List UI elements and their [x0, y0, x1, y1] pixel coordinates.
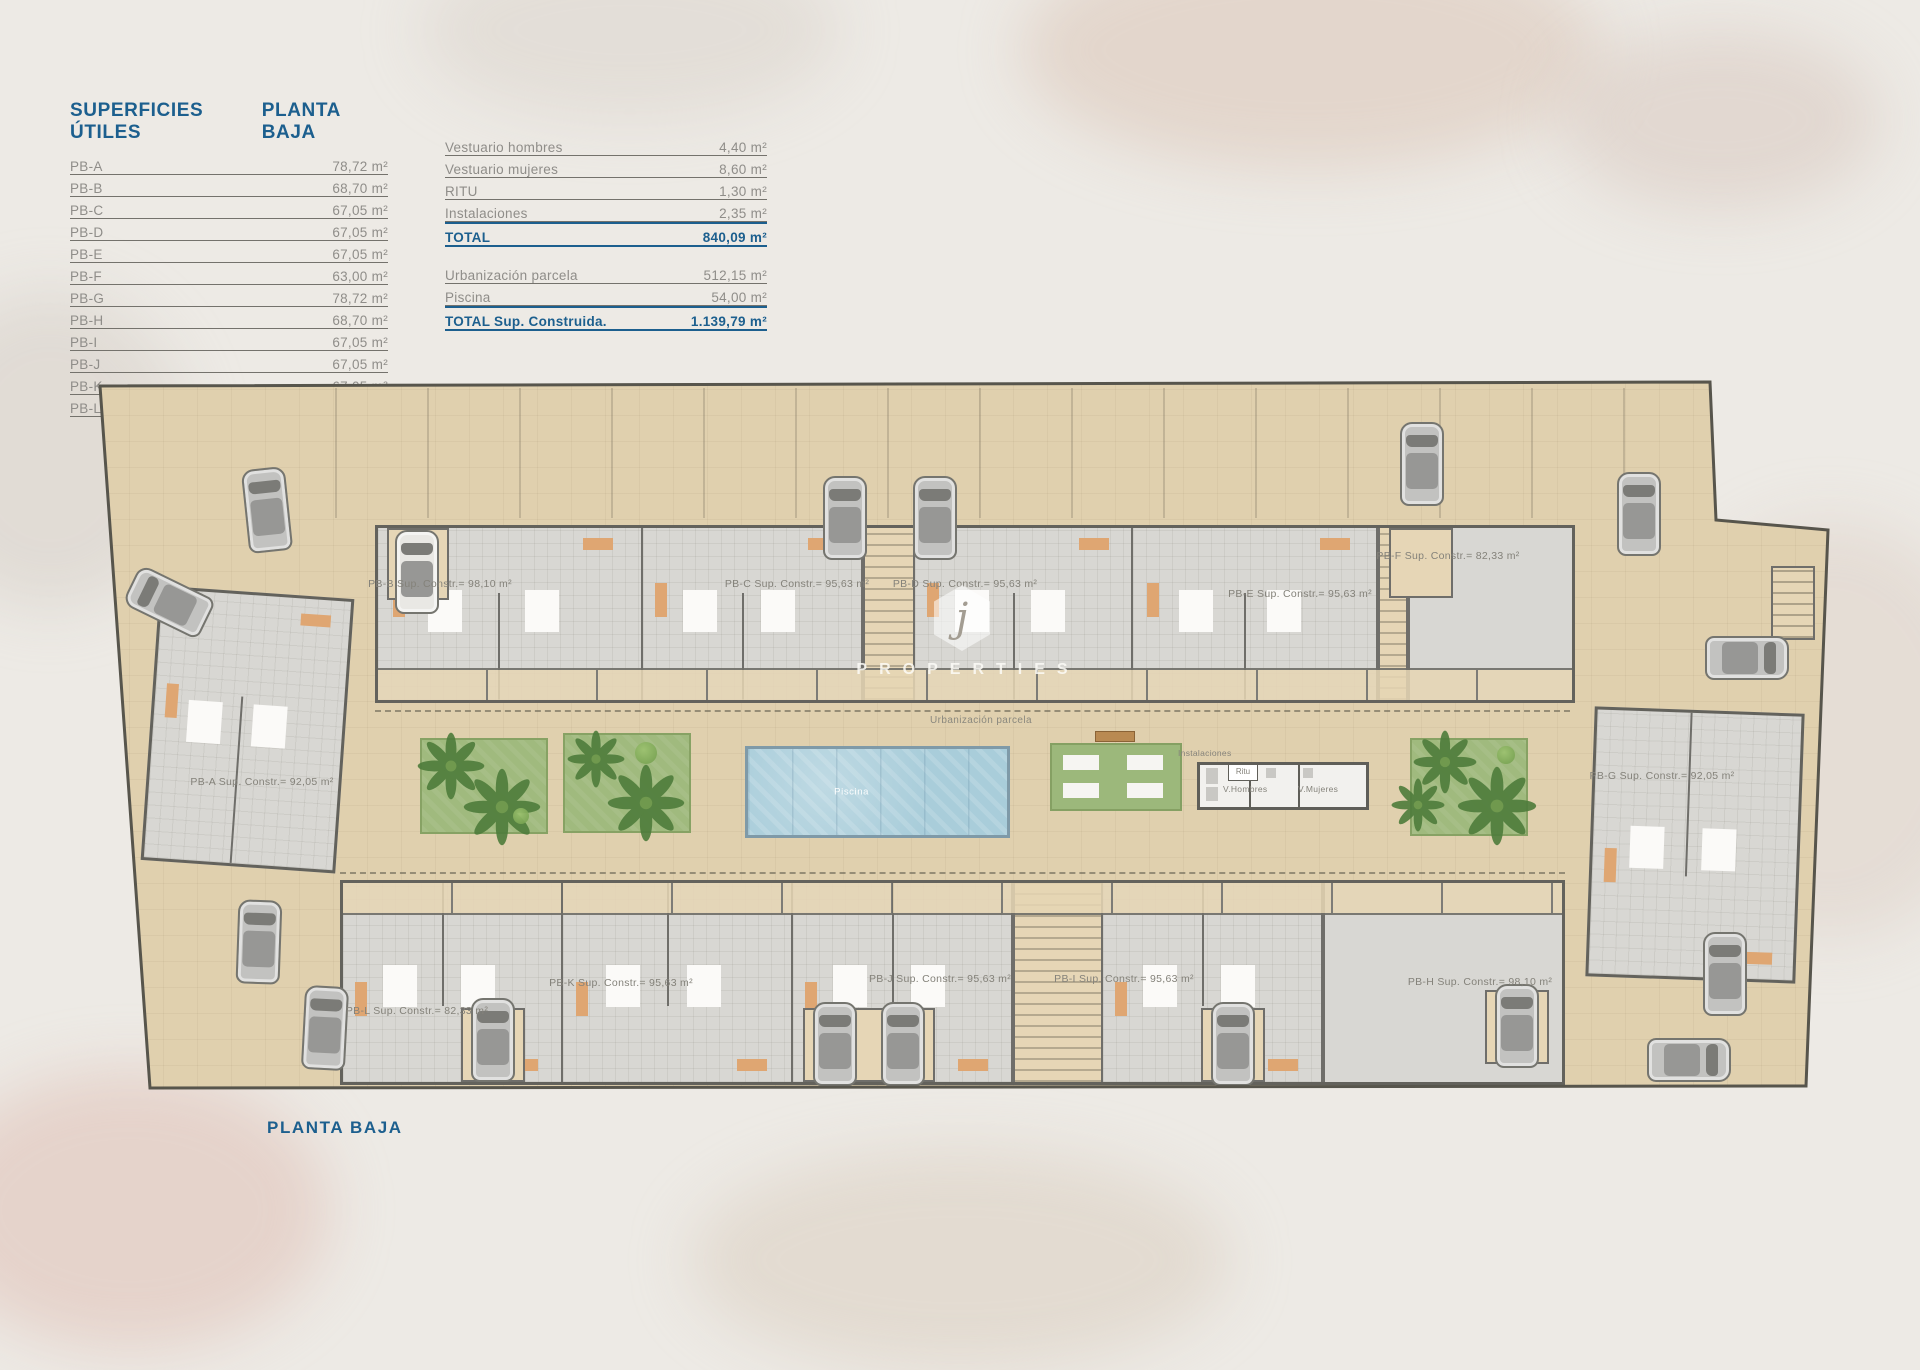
grand-total-row: TOTAL Sup. Construida.1.139,79 m² — [445, 306, 767, 331]
unit-label-pb-c: PB-C Sup. Constr.= 95,63 m² — [725, 578, 869, 590]
unit-id: PB-F — [70, 269, 102, 284]
unit-area: 63,00 m² — [332, 269, 388, 284]
item-area: 1,30 m² — [719, 184, 767, 199]
parked-car — [813, 1002, 857, 1086]
unit-area: 78,72 m² — [332, 291, 388, 306]
apartment-pb-g — [1585, 706, 1804, 983]
mens-changing-room-label: V.Hombres — [1223, 784, 1267, 794]
palm-tree-icon — [1391, 778, 1445, 832]
parking-bays — [245, 388, 1695, 518]
unit-label-pb-b: PB-B Sup. Constr.= 98,10 m² — [368, 578, 512, 590]
table-floor-title: PLANTA BAJA — [262, 100, 388, 144]
parked-car — [241, 466, 294, 554]
unit-label-pb-l: PB-L Sup. Constr.= 82,33 m² — [346, 1005, 488, 1017]
table-row: RITU1,30 m² — [445, 178, 767, 200]
table-header: SUPERFICIES ÚTILES PLANTA BAJA — [70, 100, 388, 144]
unit-label-pb-g: PB-G Sup. Constr.= 92,05 m² — [1590, 770, 1735, 782]
parked-car — [1211, 1002, 1255, 1086]
item-label: Piscina — [445, 290, 491, 305]
item-label: Vestuario hombres — [445, 140, 563, 155]
unit-id: PB-E — [70, 247, 103, 262]
background-wash — [0, 1070, 330, 1350]
unit-area: 67,05 m² — [332, 225, 388, 240]
parked-car — [1703, 932, 1747, 1016]
unit-label-pb-d: PB-D Sup. Constr.= 95,63 m² — [893, 578, 1037, 590]
boundary-dashed-line — [375, 710, 1570, 712]
unit-id: PB-I — [70, 335, 97, 350]
ritu-room: Ritu — [1228, 764, 1258, 781]
total-area: 840,09 m² — [703, 230, 767, 245]
background-wash — [1020, 0, 1600, 170]
parked-car — [395, 530, 439, 614]
parked-car — [236, 899, 283, 984]
unit-area: 78,72 m² — [332, 159, 388, 174]
bush — [513, 808, 529, 824]
parked-car — [1495, 984, 1539, 1068]
pergola-sun-loungers — [1050, 743, 1182, 811]
total-label: TOTAL — [445, 230, 490, 245]
item-label: RITU — [445, 184, 478, 199]
bush — [1497, 746, 1515, 764]
ritu-label: Ritu — [1236, 767, 1250, 776]
unit-id: PB-B — [70, 181, 103, 196]
table-gap — [445, 247, 767, 262]
unit-id: PB-G — [70, 291, 104, 306]
table-row: PB-H68,70 m² — [70, 307, 388, 329]
bush — [635, 742, 657, 764]
pool-label: Piscina — [834, 787, 869, 798]
background-wash — [690, 1150, 1230, 1370]
summary-table: Vestuario hombres4,40 m² Vestuario mujer… — [445, 134, 767, 331]
parked-car — [881, 1002, 925, 1086]
item-area: 4,40 m² — [719, 140, 767, 155]
palm-tree-icon — [463, 768, 541, 846]
unit-area: 68,70 m² — [332, 181, 388, 196]
parked-car — [1400, 422, 1444, 506]
item-label: Urbanización parcela — [445, 268, 578, 283]
grand-total-area: 1.139,79 m² — [691, 314, 767, 329]
item-area: 2,35 m² — [719, 206, 767, 221]
stairwell — [1771, 566, 1815, 640]
item-label: Instalaciones — [445, 206, 528, 221]
plan-title: PLANTA BAJA — [267, 1118, 403, 1138]
table-row: PB-J67,05 m² — [70, 351, 388, 373]
table-row: PB-D67,05 m² — [70, 219, 388, 241]
unit-area: 67,05 m² — [332, 247, 388, 262]
table-row: PB-E67,05 m² — [70, 241, 388, 263]
unit-label-pb-h: PB-H Sup. Constr.= 98,10 m² — [1408, 976, 1552, 988]
terrace-strip — [343, 883, 1562, 915]
page-root: { "colors":{"accent_blue":"#1c5f8e","tex… — [0, 0, 1920, 1280]
unit-id: PB-H — [70, 313, 103, 328]
item-area: 8,60 m² — [719, 162, 767, 177]
instalaciones-label: Instalaciones — [1178, 748, 1232, 758]
unit-area: 67,05 m² — [332, 335, 388, 350]
unit-label-pb-e: PB-E Sup. Constr.= 95,63 m² — [1228, 588, 1372, 600]
floor-plan: Piscina Instalaciones Ritu V.Hombres V.M… — [95, 380, 1835, 1092]
unit-id: PB-D — [70, 225, 103, 240]
outdoor-table — [1095, 731, 1135, 742]
table-row: PB-C67,05 m² — [70, 197, 388, 219]
swimming-pool: Piscina — [745, 746, 1010, 838]
parked-car — [1617, 472, 1661, 556]
palm-tree-icon — [607, 764, 685, 842]
unit-label-pb-a: PB-A Sup. Constr.= 92,05 m² — [190, 776, 333, 788]
item-label: Vestuario mujeres — [445, 162, 558, 177]
item-area: 512,15 m² — [704, 268, 767, 283]
unit-area: 67,05 m² — [332, 203, 388, 218]
table-row: PB-A78,72 m² — [70, 153, 388, 175]
unit-id: PB-C — [70, 203, 103, 218]
table-row: PB-I67,05 m² — [70, 329, 388, 351]
unit-label-pb-i: PB-I Sup. Constr.= 95,63 m² — [1054, 973, 1194, 985]
table-row: PB-F63,00 m² — [70, 263, 388, 285]
total-row: TOTAL840,09 m² — [445, 222, 767, 247]
table-row: Vestuario mujeres8,60 m² — [445, 156, 767, 178]
urbanization-label: Urbanización parcela — [930, 715, 1032, 726]
table-row: Vestuario hombres4,40 m² — [445, 134, 767, 156]
parked-car — [913, 476, 957, 560]
table-row: PB-G78,72 m² — [70, 285, 388, 307]
surface-areas-table: SUPERFICIES ÚTILES PLANTA BAJA PB-A78,72… — [70, 100, 388, 417]
parked-car — [1705, 636, 1789, 680]
womens-changing-room-label: V.Mujeres — [1298, 784, 1338, 794]
parked-car — [823, 476, 867, 560]
garage — [1389, 528, 1453, 598]
grand-total-label: TOTAL Sup. Construida. — [445, 314, 607, 329]
unit-label-pb-k: PB-K Sup. Constr.= 95,63 m² — [549, 977, 693, 989]
terrace-strip — [378, 668, 1572, 700]
unit-label-pb-f: PB-F Sup. Constr.= 82,33 m² — [1376, 550, 1519, 562]
unit-label-pb-j: PB-J Sup. Constr.= 95,63 m² — [869, 973, 1011, 985]
palm-tree-icon — [1457, 766, 1537, 846]
table-row: Instalaciones2,35 m² — [445, 200, 767, 222]
background-wash — [1560, 30, 1880, 210]
unit-area: 68,70 m² — [332, 313, 388, 328]
background-wash — [420, 0, 840, 120]
unit-id: PB-J — [70, 357, 100, 372]
unit-id: PB-A — [70, 159, 103, 174]
table-row: Piscina54,00 m² — [445, 284, 767, 306]
table-title: SUPERFICIES ÚTILES — [70, 100, 262, 144]
parked-car — [301, 985, 349, 1071]
item-area: 54,00 m² — [711, 290, 767, 305]
table-row: Urbanización parcela512,15 m² — [445, 262, 767, 284]
boundary-dashed-line — [340, 872, 1565, 874]
unit-area: 67,05 m² — [332, 357, 388, 372]
table-row: PB-B68,70 m² — [70, 175, 388, 197]
parked-car — [1647, 1038, 1731, 1082]
